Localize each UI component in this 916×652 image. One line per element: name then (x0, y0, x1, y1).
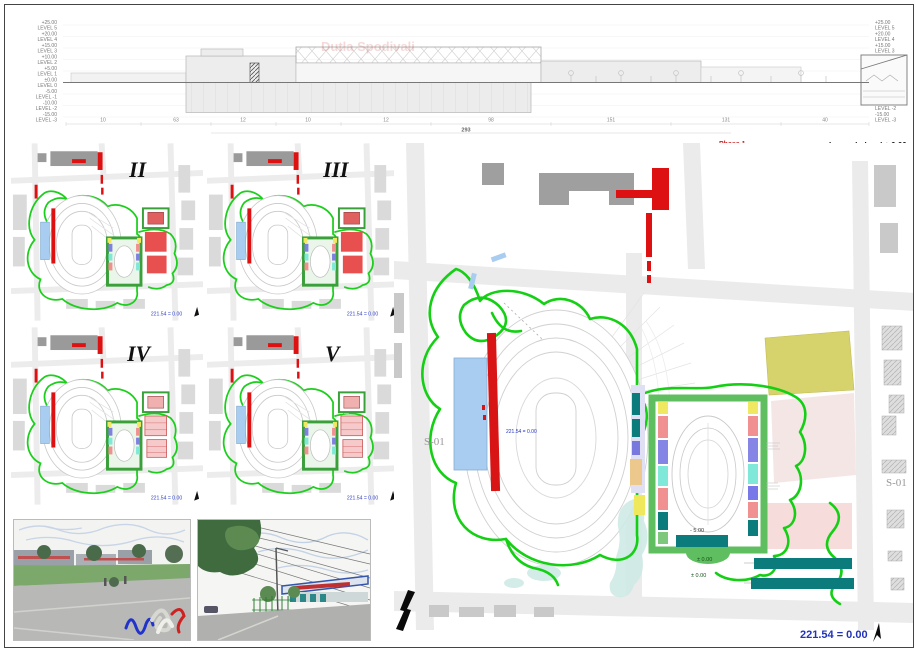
svg-text:LEVEL -3: LEVEL -3 (875, 118, 896, 124)
track-level-label: - 5.00 (690, 528, 704, 534)
site-photo-1 (13, 519, 191, 641)
svg-text:151: 151 (607, 118, 616, 124)
svg-text:98: 98 (488, 118, 494, 124)
section-building-masses: Dutla Spodivali (63, 39, 907, 113)
sheet-datum: 221.54 = 0.00 (800, 629, 868, 641)
svg-text:12: 12 (383, 118, 389, 124)
section-marker-left: S-01 (424, 436, 445, 448)
stadium-datum-label: 221.54 = 0.00 (506, 429, 537, 435)
plaza-level-label-2: ± 0.00 (691, 573, 706, 579)
plaza-level-label-1: ± 0.00 (697, 557, 712, 563)
mini-extension-structures (143, 392, 169, 457)
land-use-areas (765, 331, 856, 549)
phase-numeral: IV (126, 342, 151, 366)
phase-plan-IV: IV 221.54 = 0.00 (11, 327, 203, 505)
svg-text:10: 10 (305, 118, 311, 124)
north-arrow (395, 590, 417, 632)
drawing-sheet: +25.00LEVEL 5 +20.00LEVEL 4 +15.00LEVEL … (4, 4, 914, 648)
svg-text:63: 63 (173, 118, 179, 124)
svg-text:12: 12 (240, 118, 246, 124)
phase-numeral: V (325, 342, 341, 366)
mini-stand-asis (41, 222, 50, 259)
school-track-complex: - 5.00 ± 0.00 ± 0.00 (652, 398, 780, 579)
section-dimensions: 10 63 12 10 12 98 151 131 40 293 (66, 118, 869, 134)
mini-stand-asis (237, 406, 246, 443)
small-north-arrow (871, 623, 883, 643)
mini-extension-structures (338, 392, 365, 457)
mini-north-arrow (194, 307, 199, 317)
mini-datum: 221.54 = 0.00 (347, 496, 379, 502)
svg-text:10: 10 (100, 118, 106, 124)
phase-numeral: II (128, 158, 147, 182)
phase-plan-V: V 221.54 = 0.00 (207, 327, 399, 505)
building-section: +25.00LEVEL 5 +20.00LEVEL 4 +15.00LEVEL … (11, 11, 909, 143)
main-site-plan: 221.54 = 0.00 (394, 143, 914, 630)
mini-stand-asis (41, 406, 50, 443)
stadium-stand-asis (454, 358, 487, 470)
mini-north-arrow (194, 491, 199, 501)
mini-school-track (303, 422, 336, 469)
phase-plan-II: II 221.54 = 0.00 (11, 143, 203, 321)
section-watermark: Dutla Spodivali (321, 39, 415, 54)
level-ladder-left: +25.00LEVEL 5 +20.00LEVEL 4 +15.00LEVEL … (36, 20, 57, 124)
mini-datum: 221.54 = 0.00 (347, 312, 379, 318)
svg-text:LEVEL -3: LEVEL -3 (36, 118, 57, 124)
dismantle-bar-inside (676, 535, 728, 547)
mini-school-track (107, 422, 140, 469)
phase-numeral: III (322, 158, 350, 182)
mini-school-track (107, 238, 140, 285)
mini-stand-asis (237, 222, 246, 259)
mini-extension-structures (143, 208, 169, 273)
svg-text:40: 40 (822, 118, 828, 124)
phase-plan-III: III 221.54 = 0.00 (207, 143, 399, 321)
site-photo-2 (197, 519, 371, 641)
mini-datum: 221.54 = 0.00 (151, 312, 183, 318)
mini-school-track (303, 238, 336, 285)
svg-text:293: 293 (461, 128, 470, 134)
mini-datum: 221.54 = 0.00 (151, 496, 183, 502)
mini-extension-structures (339, 208, 365, 273)
svg-text:131: 131 (722, 118, 731, 124)
section-marker-right: S-01 (886, 477, 907, 489)
